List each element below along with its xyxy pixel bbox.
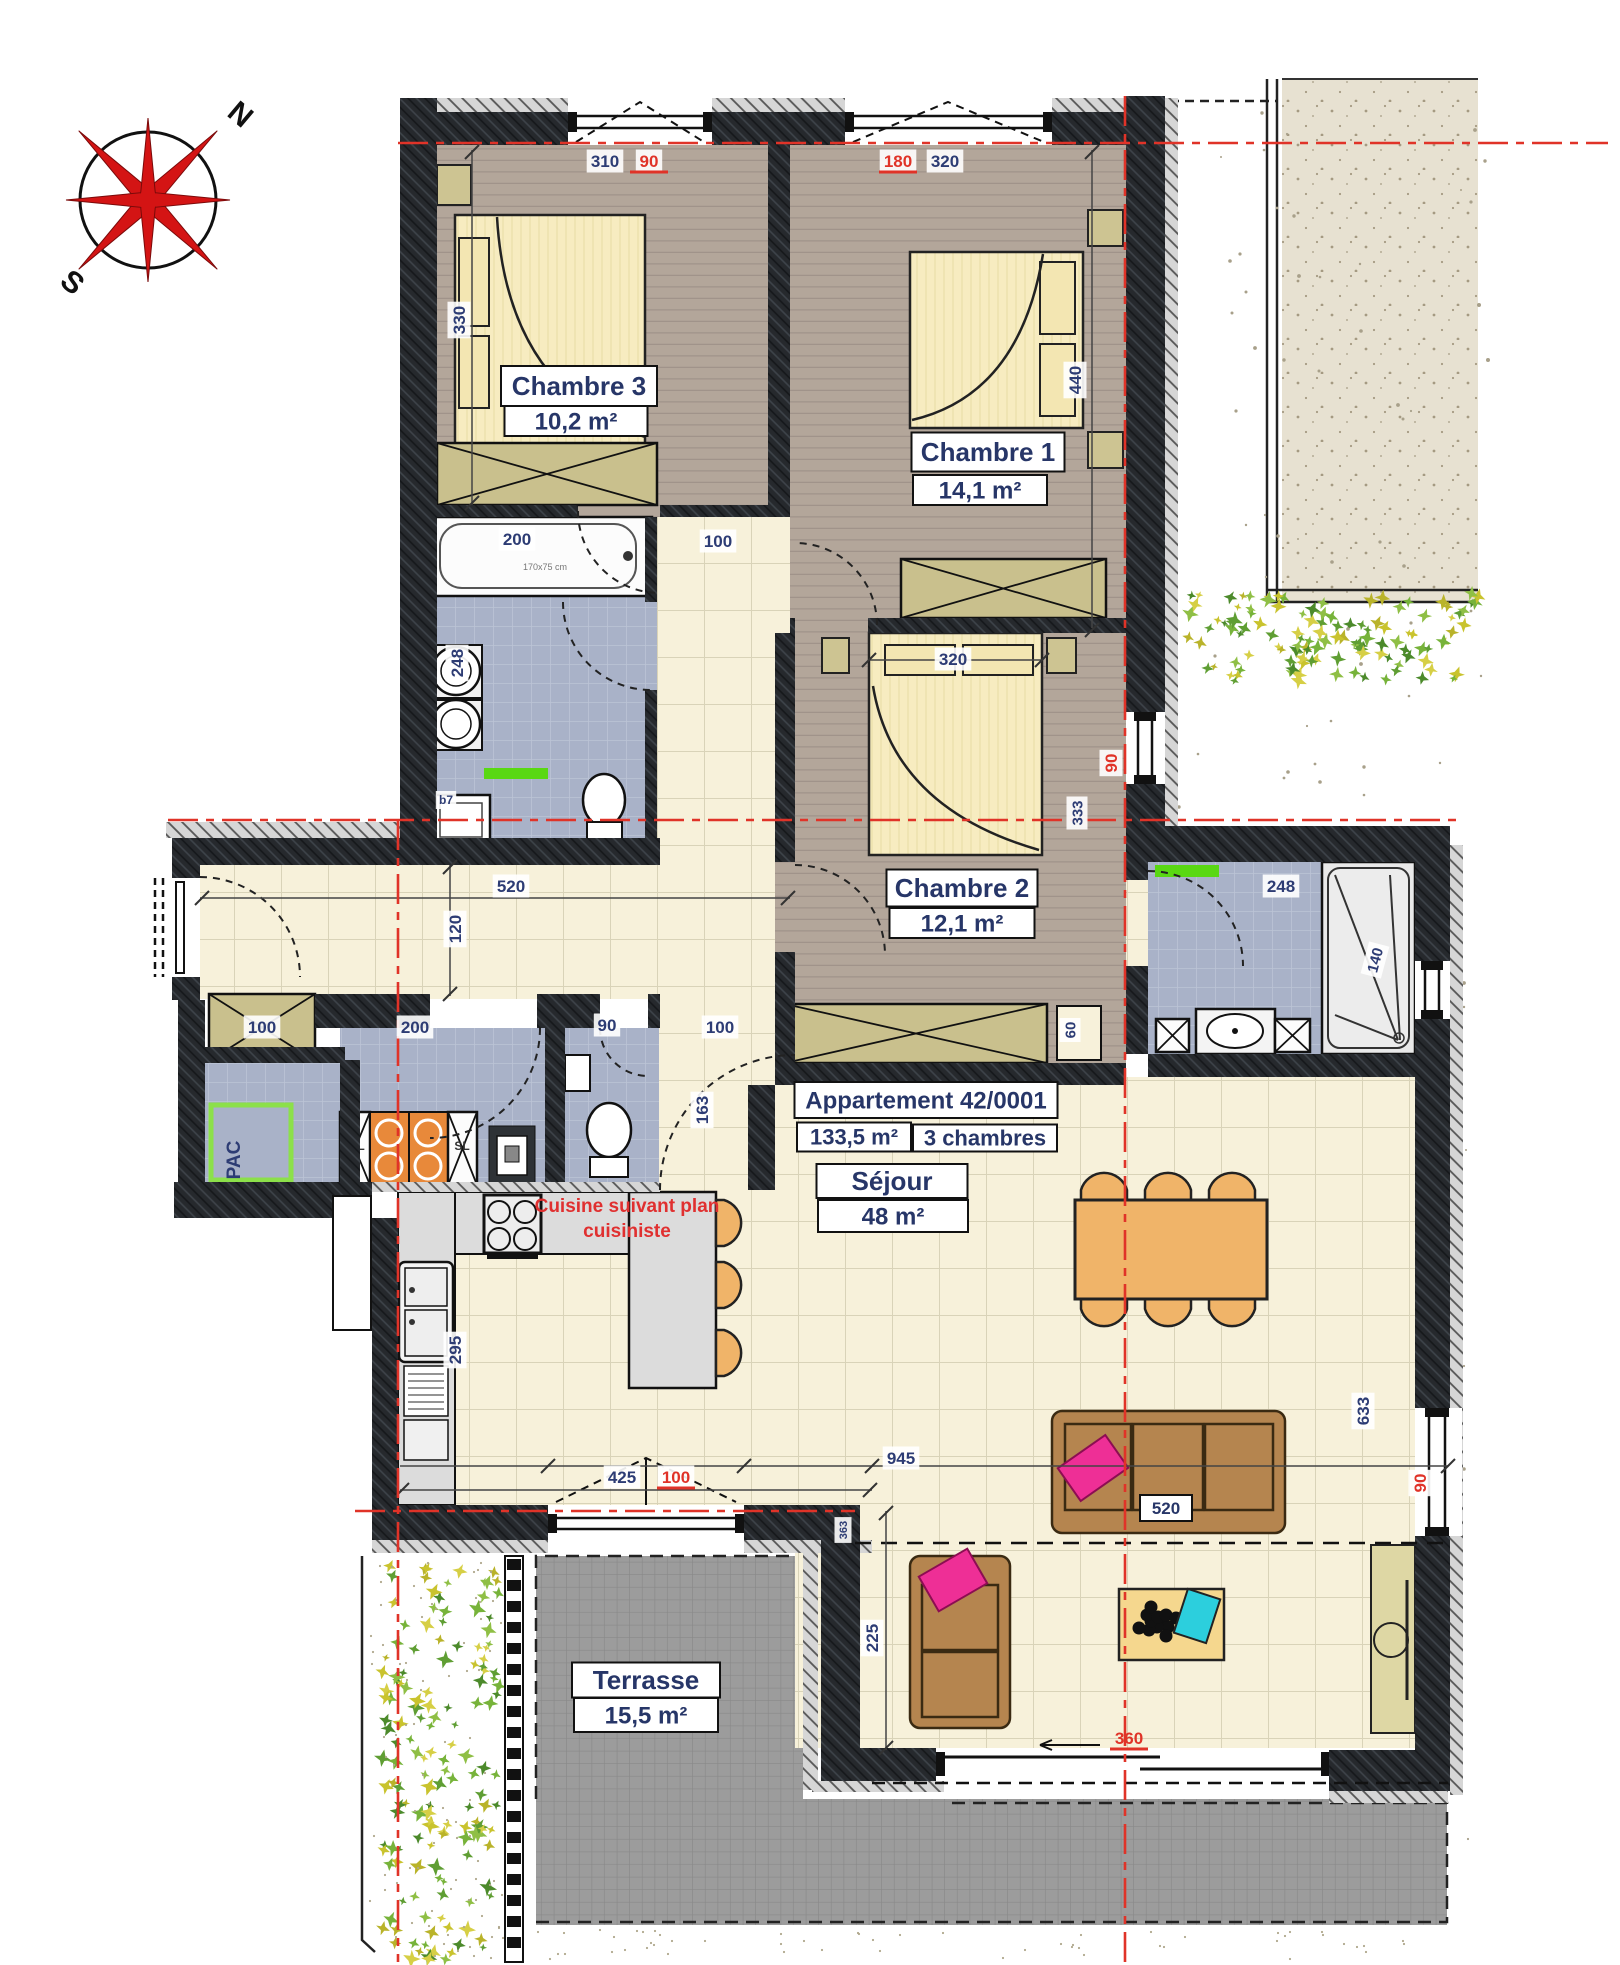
svg-text:248: 248 (448, 649, 467, 677)
svg-text:SL: SL (454, 1139, 469, 1153)
svg-text:440: 440 (1066, 366, 1085, 394)
svg-text:PAC: PAC (224, 1140, 245, 1179)
svg-text:Chambre 1: Chambre 1 (921, 437, 1055, 467)
svg-text:248: 248 (1267, 877, 1295, 896)
svg-text:295: 295 (446, 1336, 465, 1364)
svg-text:100: 100 (662, 1468, 690, 1487)
svg-text:163: 163 (693, 1096, 712, 1124)
svg-text:Cuisine suivant plan: Cuisine suivant plan (535, 1196, 720, 1217)
svg-text:3 chambres: 3 chambres (924, 1126, 1046, 1151)
svg-text:133,5 m²: 133,5 m² (810, 1125, 898, 1150)
svg-text:225: 225 (863, 1624, 882, 1652)
svg-text:633: 633 (1354, 1397, 1373, 1425)
svg-text:945: 945 (887, 1449, 915, 1468)
svg-text:15,5 m²: 15,5 m² (605, 1702, 688, 1729)
svg-text:200: 200 (401, 1018, 429, 1037)
svg-text:100: 100 (704, 532, 732, 551)
svg-text:cuisiniste: cuisiniste (583, 1221, 671, 1242)
svg-text:90: 90 (640, 152, 659, 171)
svg-text:333: 333 (1069, 800, 1086, 825)
svg-text:200: 200 (503, 530, 531, 549)
svg-text:12,1 m²: 12,1 m² (921, 910, 1004, 937)
svg-text:90: 90 (1102, 754, 1121, 773)
svg-text:425: 425 (608, 1468, 636, 1487)
svg-text:310: 310 (591, 152, 619, 171)
svg-text:320: 320 (939, 650, 967, 669)
svg-text:90: 90 (1411, 1474, 1430, 1493)
svg-text:330: 330 (450, 306, 469, 334)
svg-text:170x75 cm: 170x75 cm (523, 562, 567, 572)
svg-text:Appartement 42/0001: Appartement 42/0001 (805, 1087, 1046, 1114)
svg-text:100: 100 (706, 1018, 734, 1037)
svg-text:Chambre 2: Chambre 2 (895, 873, 1029, 903)
svg-text:360: 360 (1115, 1729, 1143, 1748)
svg-text:320: 320 (931, 152, 959, 171)
svg-text:Séjour: Séjour (852, 1166, 933, 1196)
svg-text:10,2 m²: 10,2 m² (535, 408, 618, 435)
svg-text:120: 120 (446, 915, 465, 943)
svg-text:520: 520 (1152, 1499, 1180, 1518)
svg-text:363: 363 (838, 1521, 850, 1539)
svg-text:90: 90 (598, 1016, 617, 1035)
svg-text:48 m²: 48 m² (862, 1203, 925, 1230)
svg-text:14,1 m²: 14,1 m² (939, 477, 1022, 504)
svg-text:Terrasse: Terrasse (593, 1665, 700, 1695)
svg-text:520: 520 (497, 877, 525, 896)
svg-text:b7: b7 (439, 793, 453, 807)
svg-text:100: 100 (248, 1018, 276, 1037)
svg-text:60: 60 (1062, 1022, 1079, 1039)
svg-text:180: 180 (884, 152, 912, 171)
svg-text:Chambre 3: Chambre 3 (512, 371, 646, 401)
